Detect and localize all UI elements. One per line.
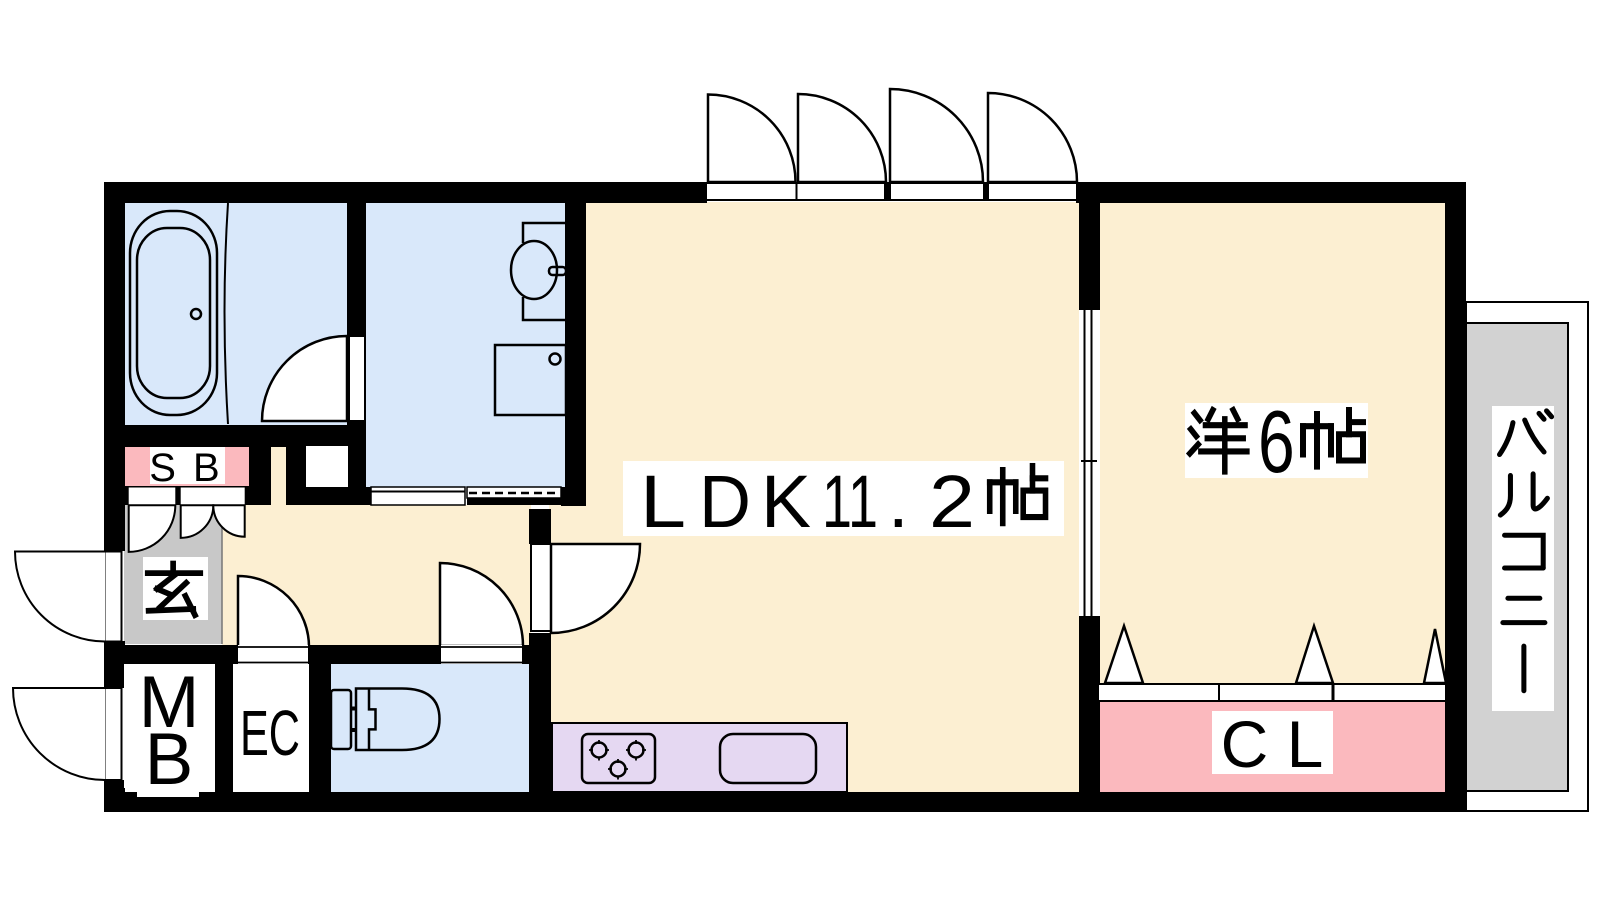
svg-text:S B: S B: [149, 446, 222, 490]
svg-text:D: D: [699, 460, 751, 543]
svg-text:EC: EC: [240, 697, 300, 769]
svg-text:L: L: [640, 460, 686, 543]
svg-text:2: 2: [929, 460, 975, 543]
svg-text:B: B: [145, 719, 194, 800]
svg-text:6: 6: [1258, 394, 1295, 491]
svg-text:K: K: [761, 460, 811, 543]
svg-text:.: .: [888, 460, 909, 543]
svg-text:11: 11: [822, 460, 878, 543]
svg-text:C L: C L: [1221, 707, 1324, 781]
